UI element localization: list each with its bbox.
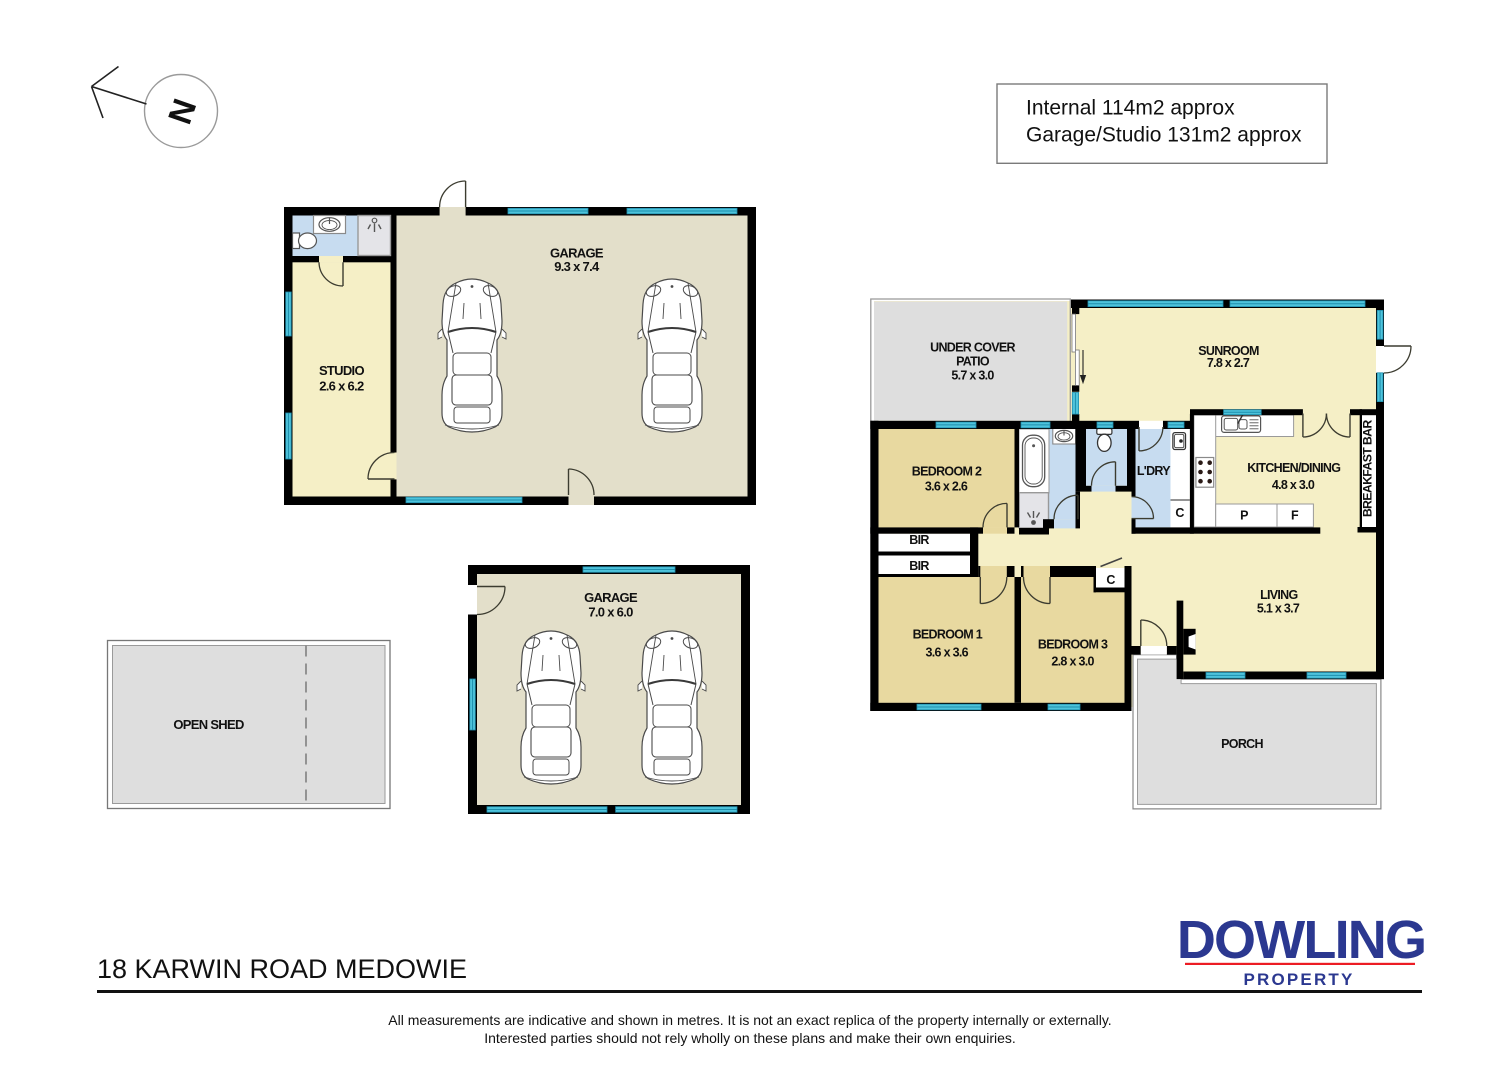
svg-text:5.7 x 3.0: 5.7 x 3.0 <box>951 369 994 383</box>
svg-text:7.8 x 2.7: 7.8 x 2.7 <box>1207 356 1250 370</box>
svg-text:9.3 x 7.4: 9.3 x 7.4 <box>554 259 600 274</box>
svg-text:2.6 x 6.2: 2.6 x 6.2 <box>319 379 364 394</box>
svg-text:Garage/Studio 131m2 approx: Garage/Studio 131m2 approx <box>1026 124 1302 147</box>
svg-text:PATIO: PATIO <box>956 355 990 369</box>
svg-text:DOWLING: DOWLING <box>1177 910 1425 970</box>
svg-text:BREAKFAST BAR: BREAKFAST BAR <box>1361 420 1375 518</box>
svg-text:UNDER COVER: UNDER COVER <box>930 340 1015 354</box>
svg-text:GARAGE: GARAGE <box>584 590 638 605</box>
svg-text:PORCH: PORCH <box>1221 737 1263 751</box>
svg-text:4.8 x 3.0: 4.8 x 3.0 <box>1272 478 1315 492</box>
svg-text:BEDROOM 3: BEDROOM 3 <box>1038 638 1108 652</box>
svg-text:BIR: BIR <box>909 533 929 547</box>
svg-text:OPEN SHED: OPEN SHED <box>173 717 244 732</box>
svg-text:PROPERTY: PROPERTY <box>1243 970 1354 989</box>
svg-text:KITCHEN/DINING: KITCHEN/DINING <box>1247 461 1340 475</box>
svg-text:18 KARWIN ROAD MEDOWIE: 18 KARWIN ROAD MEDOWIE <box>97 954 467 984</box>
svg-text:L'DRY: L'DRY <box>1137 464 1171 478</box>
svg-text:LIVING: LIVING <box>1260 588 1297 602</box>
svg-text:P: P <box>1240 509 1248 523</box>
svg-text:3.6 x 2.6: 3.6 x 2.6 <box>925 480 968 494</box>
svg-text:3.6 x 3.6: 3.6 x 3.6 <box>926 646 969 660</box>
svg-text:BEDROOM 2: BEDROOM 2 <box>912 464 982 478</box>
svg-text:7.0 x 6.0: 7.0 x 6.0 <box>588 605 633 620</box>
svg-text:F: F <box>1291 509 1299 523</box>
svg-text:Interested parties should not: Interested parties should not rely wholl… <box>484 1030 1016 1046</box>
svg-text:Internal 114m2 approx: Internal 114m2 approx <box>1026 97 1235 120</box>
svg-text:2.8 x 3.0: 2.8 x 3.0 <box>1051 655 1094 669</box>
svg-text:All measurements are indicativ: All measurements are indicative and show… <box>388 1012 1111 1028</box>
svg-text:5.1 x 3.7: 5.1 x 3.7 <box>1257 602 1300 616</box>
svg-text:C: C <box>1175 506 1184 520</box>
svg-text:BEDROOM 1: BEDROOM 1 <box>913 627 983 641</box>
svg-text:BIR: BIR <box>909 559 929 573</box>
svg-text:STUDIO: STUDIO <box>319 363 365 378</box>
svg-text:C: C <box>1106 573 1115 587</box>
